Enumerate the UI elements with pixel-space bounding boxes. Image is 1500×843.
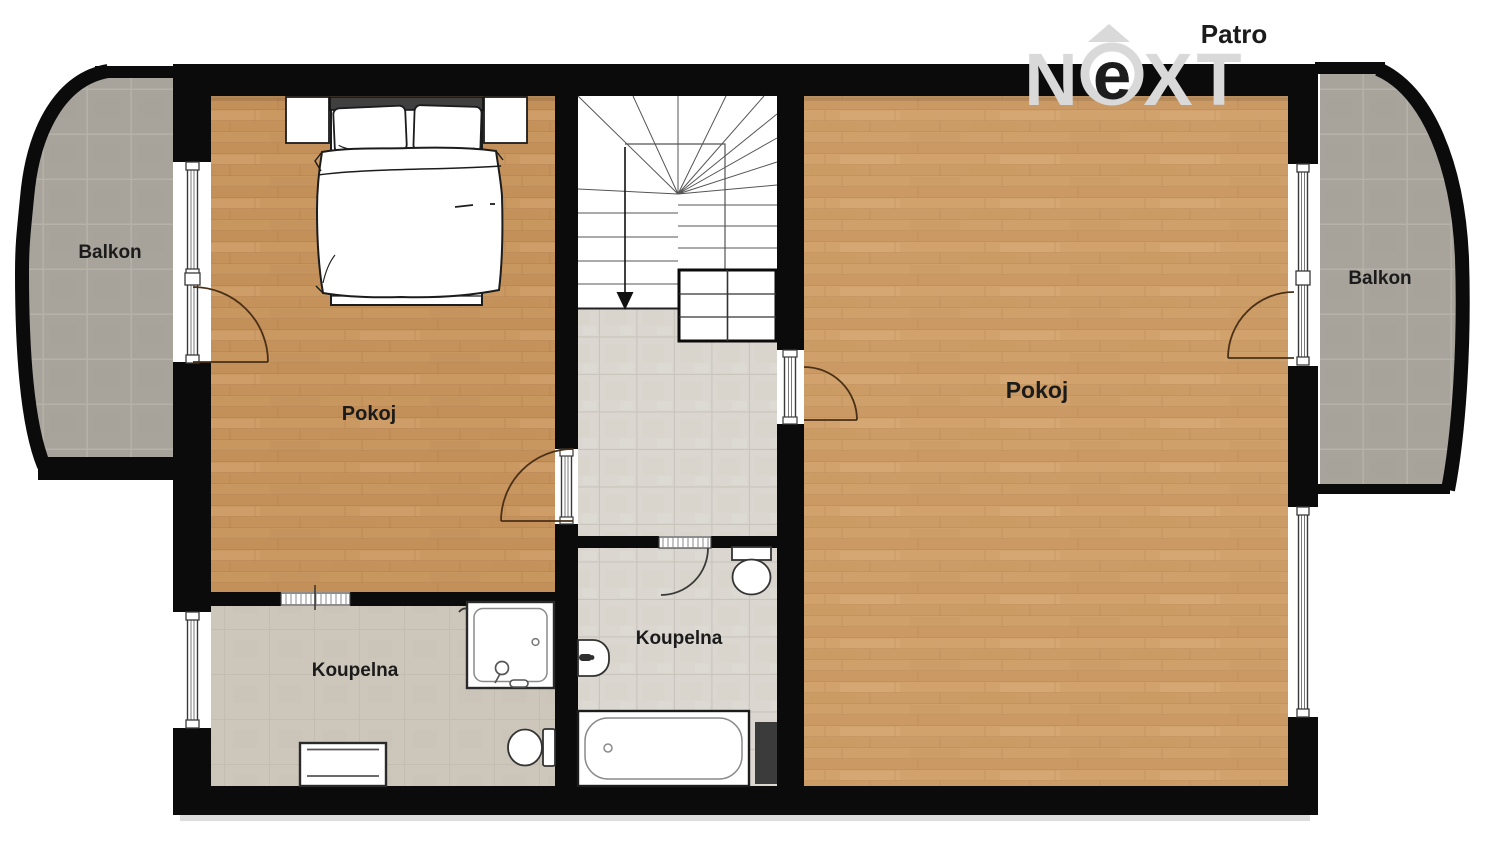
svg-text:T: T	[1196, 38, 1241, 121]
svg-text:e: e	[1093, 37, 1131, 114]
svg-text:Balkon: Balkon	[78, 242, 141, 263]
svg-text:Balkon: Balkon	[1348, 268, 1411, 289]
svg-text:Koupelna: Koupelna	[312, 660, 399, 681]
svg-text:Pokoj: Pokoj	[342, 403, 396, 425]
svg-text:X: X	[1143, 38, 1192, 121]
svg-text:Koupelna: Koupelna	[636, 628, 723, 649]
svg-text:N: N	[1024, 38, 1077, 121]
svg-text:Pokoj: Pokoj	[1006, 377, 1069, 403]
